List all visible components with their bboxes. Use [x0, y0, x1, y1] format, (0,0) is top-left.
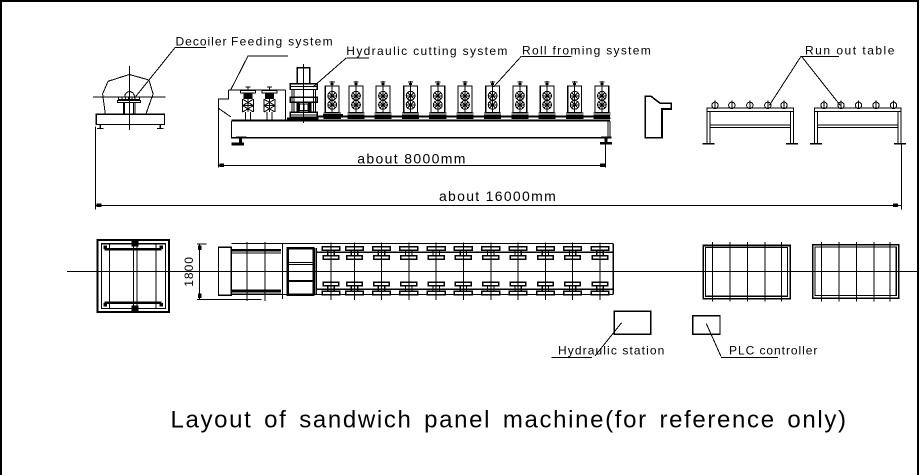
svg-text:about 16000mm: about 16000mm — [439, 188, 557, 204]
svg-text:Run out table: Run out table — [805, 44, 896, 58]
svg-text:Feeding system: Feeding system — [231, 35, 334, 49]
svg-text:Hydraulic station: Hydraulic station — [558, 344, 665, 358]
svg-text:Decoiler: Decoiler — [176, 35, 228, 49]
svg-text:Layout of sandwich panel machi: Layout of sandwich panel machine(for ref… — [171, 407, 848, 434]
svg-text:Roll froming system: Roll froming system — [522, 43, 652, 57]
svg-text:about 8000mm: about 8000mm — [357, 151, 467, 167]
svg-text:Hydraulic cutting system: Hydraulic cutting system — [346, 44, 508, 58]
svg-text:PLC controller: PLC controller — [729, 344, 818, 358]
svg-text:1800: 1800 — [182, 256, 196, 287]
